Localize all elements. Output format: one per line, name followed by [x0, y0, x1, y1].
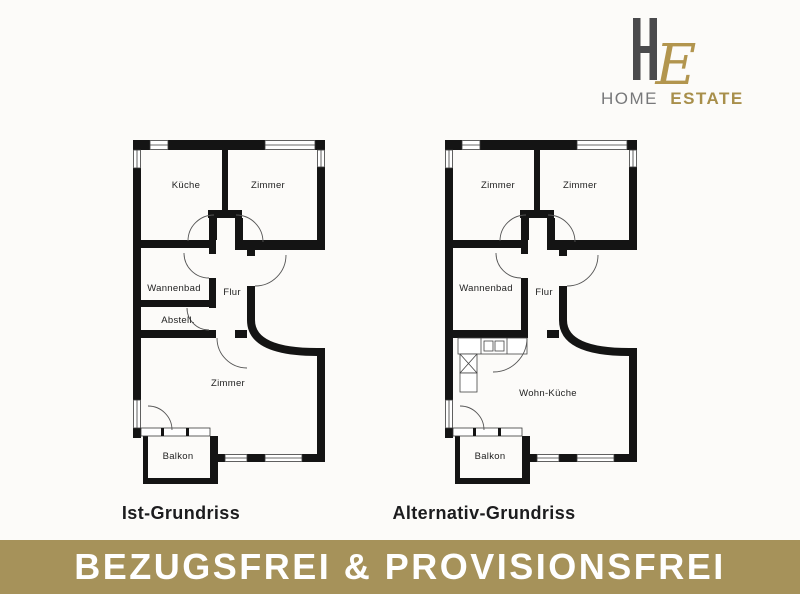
balcony-door-band [141, 428, 210, 436]
logo-monogram-h-icon [633, 18, 657, 80]
room-label-bath: Wannenbad [147, 283, 201, 294]
room-label-hall: Flur [223, 287, 241, 298]
room-label-room-top: Zimmer [251, 180, 285, 191]
room-label-bath: Wannenbad [459, 283, 513, 294]
kitchen-sink-icon [484, 341, 493, 351]
balcony-door-band [453, 428, 522, 436]
room-label-kitchen: Küche [172, 180, 200, 191]
stairwell-curve-wall [251, 286, 317, 352]
room-label-room-left: Zimmer [481, 180, 515, 191]
room-label-living-kitchen: Wohn-Küche [519, 388, 577, 399]
floor-plan-alternativ: Zimmer Zimmer Wannenbad Flur Wohn-Küche … [445, 140, 637, 484]
banner-text: BEZUGSFREI & PROVISIONSFREI [74, 546, 726, 588]
kitchen-sink-icon [495, 341, 504, 351]
logo-word-estate: ESTATE [670, 89, 744, 108]
bottom-banner: BEZUGSFREI & PROVISIONSFREI [0, 540, 800, 594]
floor-plan-ist: Küche Zimmer Wannenbad Flur Abstell. Zim… [133, 140, 325, 484]
logo-wordmark: HOME ESTATE [601, 89, 744, 108]
room-label-balcony: Balkon [475, 451, 506, 462]
room-label-hall: Flur [535, 287, 553, 298]
room-label-room-right: Zimmer [563, 180, 597, 191]
logo-word-home: HOME [601, 89, 658, 108]
page-root: { "logo": { "monogram_h": "H", "monogram… [0, 0, 800, 594]
kitchen-counter [458, 338, 527, 392]
room-label-main-room: Zimmer [211, 378, 245, 389]
room-label-balcony: Balkon [163, 451, 194, 462]
home-estate-logo: E HOME ESTATE [598, 12, 758, 108]
stairwell-curve-wall [563, 286, 629, 352]
caption-ist-grundriss: Ist-Grundriss [122, 503, 240, 524]
caption-alternativ-grundriss: Alternativ-Grundriss [392, 503, 575, 524]
room-label-storage: Abstell. [161, 315, 195, 326]
windows [446, 141, 637, 462]
